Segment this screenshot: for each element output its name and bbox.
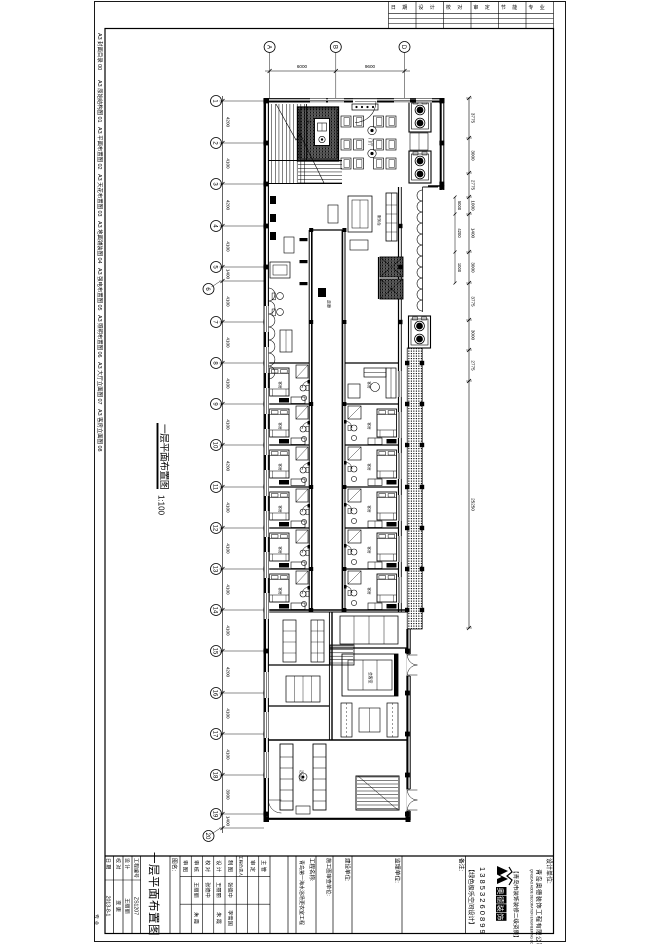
svg-text:王丽丽: 王丽丽 bbox=[193, 882, 200, 898]
svg-text:5000: 5000 bbox=[457, 201, 462, 211]
svg-text:日 期: 日 期 bbox=[391, 5, 410, 11]
svg-text:12: 12 bbox=[212, 525, 218, 532]
svg-text:客房: 客房 bbox=[367, 587, 372, 595]
svg-text:审 定: 审 定 bbox=[249, 860, 257, 872]
svg-text:工程负责人: 工程负责人 bbox=[238, 856, 245, 878]
svg-text:1:100: 1:100 bbox=[157, 495, 166, 516]
svg-text:2: 2 bbox=[212, 141, 218, 145]
svg-text:D: D bbox=[400, 45, 406, 50]
svg-text:A3 客房立面图 08: A3 客房立面图 08 bbox=[96, 409, 104, 452]
svg-text:工程编号: 工程编号 bbox=[133, 858, 140, 878]
svg-text:9: 9 bbox=[212, 402, 218, 406]
svg-text:建设单位:: 建设单位: bbox=[344, 858, 352, 882]
svg-text:A3 照明布置图 06: A3 照明布置图 06 bbox=[96, 315, 104, 358]
svg-text:2775: 2775 bbox=[471, 360, 476, 371]
svg-text:制 图: 制 图 bbox=[226, 860, 234, 872]
svg-text:A3 地面铺装图 04: A3 地面铺装图 04 bbox=[96, 221, 104, 264]
svg-text:一层平面布置图: 一层平面布置图 bbox=[158, 424, 170, 489]
svg-text:客房: 客房 bbox=[278, 422, 283, 430]
svg-text:日 期: 日 期 bbox=[105, 858, 111, 869]
svg-text:张德中: 张德中 bbox=[204, 882, 212, 898]
svg-text:A3 大厅立面图 07: A3 大厅立面图 07 bbox=[96, 362, 104, 405]
svg-text:A3 天花布置图 03: A3 天花布置图 03 bbox=[96, 174, 104, 217]
svg-text:客房: 客房 bbox=[278, 505, 283, 513]
svg-text:4100: 4100 bbox=[226, 419, 231, 430]
svg-text:13: 13 bbox=[212, 566, 218, 573]
svg-text:朱 霞: 朱 霞 bbox=[193, 912, 201, 924]
svg-text:4100: 4100 bbox=[226, 241, 231, 252]
svg-text:25250: 25250 bbox=[471, 498, 476, 511]
svg-text:门厅: 门厅 bbox=[367, 138, 374, 146]
svg-text:客房: 客房 bbox=[367, 422, 372, 430]
svg-text:2775: 2775 bbox=[471, 180, 476, 191]
svg-text:4100: 4100 bbox=[226, 625, 231, 636]
svg-text:朱 霞: 朱 霞 bbox=[215, 912, 223, 924]
svg-text:4100: 4100 bbox=[226, 708, 231, 719]
svg-text:审 定: 审 定 bbox=[473, 4, 492, 11]
svg-text:20: 20 bbox=[204, 833, 210, 840]
svg-text:9600: 9600 bbox=[365, 64, 376, 69]
svg-text:王丽丽: 王丽丽 bbox=[124, 898, 131, 914]
svg-text:设 计: 设 计 bbox=[418, 4, 437, 11]
svg-text:1400: 1400 bbox=[226, 269, 231, 280]
svg-text:4100: 4100 bbox=[226, 378, 231, 389]
svg-text:会客室: 会客室 bbox=[368, 672, 373, 684]
svg-text:11: 11 bbox=[212, 484, 218, 491]
svg-text:3775: 3775 bbox=[471, 113, 476, 124]
svg-text:一层平面布置图: 一层平面布置图 bbox=[147, 852, 160, 936]
svg-text:1 3 8 5 3 2 6 0 8 9 9: 1 3 8 5 3 2 6 0 8 9 9 bbox=[478, 867, 487, 934]
svg-text:变 更: 变 更 bbox=[115, 900, 123, 913]
svg-text:4100: 4100 bbox=[226, 296, 231, 307]
svg-text:6: 6 bbox=[204, 287, 210, 291]
svg-text:1000: 1000 bbox=[471, 200, 476, 211]
svg-text:8: 8 bbox=[212, 361, 218, 365]
svg-text:1400: 1400 bbox=[471, 228, 476, 239]
svg-text:7: 7 bbox=[212, 320, 218, 324]
svg-text:16: 16 bbox=[212, 690, 218, 697]
svg-text:张德中: 张德中 bbox=[226, 882, 234, 898]
svg-text:4100: 4100 bbox=[226, 749, 231, 760]
svg-text:审 核: 审 核 bbox=[193, 860, 201, 872]
svg-text:服务台: 服务台 bbox=[377, 215, 382, 226]
svg-text:A3 平面布置图 02: A3 平面布置图 02 bbox=[96, 127, 104, 170]
svg-text:1: 1 bbox=[212, 99, 218, 103]
svg-text:4100: 4100 bbox=[226, 502, 231, 513]
svg-text:审 图: 审 图 bbox=[181, 860, 189, 872]
svg-text:【绿色极乐空间设计】: 【绿色极乐空间设计】 bbox=[467, 866, 475, 928]
svg-text:王丽丽: 王丽丽 bbox=[215, 882, 222, 898]
svg-text:2013-8-1: 2013-8-1 bbox=[105, 896, 111, 917]
svg-text:走廊: 走廊 bbox=[327, 300, 333, 308]
svg-text:校 对: 校 对 bbox=[446, 4, 465, 11]
svg-text:14: 14 bbox=[212, 607, 218, 614]
svg-text:17: 17 bbox=[212, 731, 218, 738]
svg-text:5: 5 bbox=[212, 265, 218, 269]
svg-text:4: 4 bbox=[212, 224, 218, 228]
svg-text:施工图审查单位:: 施工图审查单位: bbox=[325, 858, 333, 896]
svg-text:4100: 4100 bbox=[226, 543, 231, 554]
svg-text:李雪国: 李雪国 bbox=[226, 910, 234, 926]
svg-text:4100: 4100 bbox=[226, 584, 231, 595]
svg-text:B: B bbox=[332, 45, 338, 49]
svg-text:青岛奥德装饰工程有限公司: 青岛奥德装饰工程有限公司 bbox=[535, 869, 543, 944]
svg-text:客房: 客房 bbox=[367, 546, 372, 554]
svg-text:校 对: 校 对 bbox=[115, 858, 122, 869]
svg-text:设 计: 设 计 bbox=[124, 858, 131, 869]
svg-text:4200: 4200 bbox=[226, 667, 231, 678]
svg-text:10: 10 bbox=[212, 442, 218, 449]
svg-text:4100: 4100 bbox=[226, 337, 231, 348]
svg-text:1400: 1400 bbox=[226, 816, 231, 827]
svg-text:4200: 4200 bbox=[457, 228, 462, 238]
svg-text:19: 19 bbox=[212, 811, 218, 818]
svg-text:设计单位:: 设计单位: bbox=[545, 858, 553, 884]
svg-text:4200: 4200 bbox=[226, 117, 231, 128]
svg-text:6000: 6000 bbox=[297, 64, 308, 69]
svg-text:QINGDAO AODE DECORATION ENGINE: QINGDAO AODE DECORATION ENGINEERING CO.,… bbox=[530, 869, 534, 944]
svg-text:主 管: 主 管 bbox=[260, 860, 268, 872]
svg-text:图名:: 图名: bbox=[171, 858, 179, 872]
svg-text:客房: 客房 bbox=[367, 381, 372, 389]
svg-text:18: 18 bbox=[212, 772, 218, 779]
svg-text:A3 封面目录 00: A3 封面目录 00 bbox=[96, 33, 104, 70]
svg-text:1000: 1000 bbox=[457, 263, 462, 273]
svg-text:备注:: 备注: bbox=[458, 858, 466, 872]
svg-text:客房: 客房 bbox=[278, 381, 283, 389]
svg-text:节 能: 节 能 bbox=[501, 4, 520, 11]
svg-text:3900: 3900 bbox=[226, 789, 231, 800]
svg-text:客房: 客房 bbox=[367, 463, 372, 471]
svg-text:工程名称:: 工程名称: bbox=[308, 858, 316, 882]
svg-text:3775: 3775 bbox=[471, 296, 476, 307]
svg-text:监理单位:: 监理单位: bbox=[394, 858, 402, 883]
svg-text:校 对: 校 对 bbox=[204, 860, 212, 872]
svg-text:15: 15 bbox=[212, 648, 218, 655]
svg-text:3000: 3000 bbox=[471, 330, 476, 341]
svg-text:设 计: 设 计 bbox=[215, 860, 223, 872]
svg-text:4200: 4200 bbox=[226, 461, 231, 472]
svg-text:专 业: 专 业 bbox=[528, 4, 547, 11]
svg-text:3: 3 bbox=[212, 182, 218, 186]
svg-text:3000: 3000 bbox=[471, 262, 476, 273]
svg-text:青岛第一海水浴场更衣室工程: 青岛第一海水浴场更衣室工程 bbox=[298, 860, 305, 925]
svg-text:A3 强电布置图 05: A3 强电布置图 05 bbox=[96, 268, 104, 311]
svg-text:客房: 客房 bbox=[367, 505, 372, 513]
svg-text:A: A bbox=[265, 45, 271, 49]
svg-text:3000: 3000 bbox=[471, 150, 476, 161]
svg-text:ZS1207: ZS1207 bbox=[133, 897, 139, 915]
svg-text:4100: 4100 bbox=[226, 158, 231, 169]
svg-text:客房: 客房 bbox=[278, 463, 283, 471]
svg-text:客房: 客房 bbox=[278, 546, 283, 554]
svg-text:4200: 4200 bbox=[226, 200, 231, 211]
svg-text:客房: 客房 bbox=[278, 587, 283, 595]
svg-text:【青岛市装饰装修二级资质】: 【青岛市装饰装修二级资质】 bbox=[512, 868, 520, 941]
svg-text:A3 原始结构图 01: A3 原始结构图 01 bbox=[96, 80, 104, 123]
svg-text:专 业: 专 业 bbox=[93, 914, 100, 925]
